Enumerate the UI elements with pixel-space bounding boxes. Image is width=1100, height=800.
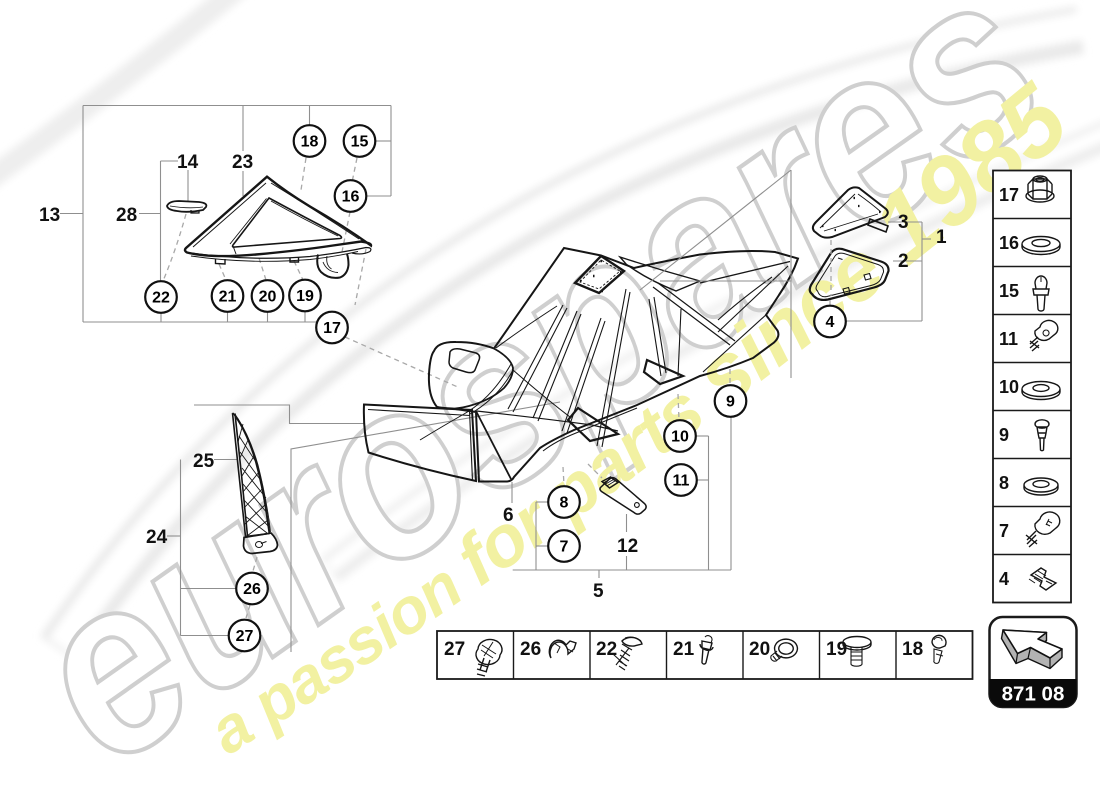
svg-text:15: 15 — [999, 281, 1019, 301]
svg-text:20: 20 — [259, 289, 277, 306]
svg-text:19: 19 — [826, 639, 847, 660]
svg-text:20: 20 — [749, 639, 770, 660]
svg-text:18: 18 — [301, 134, 319, 151]
svg-text:11: 11 — [673, 473, 690, 490]
svg-text:17: 17 — [999, 185, 1019, 205]
svg-text:17: 17 — [323, 320, 341, 337]
svg-text:4: 4 — [826, 314, 835, 331]
svg-text:1: 1 — [936, 227, 947, 248]
svg-text:24: 24 — [146, 527, 168, 548]
svg-text:6: 6 — [503, 505, 514, 526]
svg-text:7: 7 — [999, 521, 1009, 541]
svg-text:12: 12 — [617, 536, 638, 557]
svg-text:21: 21 — [673, 639, 695, 660]
svg-text:8: 8 — [560, 495, 569, 512]
svg-text:10: 10 — [671, 429, 689, 446]
svg-text:19: 19 — [296, 288, 314, 305]
svg-text:7: 7 — [560, 539, 569, 556]
svg-text:10: 10 — [999, 377, 1019, 397]
svg-text:11: 11 — [999, 329, 1018, 349]
svg-text:8: 8 — [999, 473, 1009, 493]
svg-text:21: 21 — [219, 289, 237, 306]
svg-text:5: 5 — [593, 581, 604, 602]
svg-text:27: 27 — [444, 639, 465, 660]
svg-text:27: 27 — [236, 628, 254, 645]
svg-text:26: 26 — [243, 581, 261, 598]
svg-text:13: 13 — [39, 205, 60, 226]
svg-text:2: 2 — [898, 251, 909, 272]
svg-text:871 08: 871 08 — [1002, 683, 1065, 706]
svg-text:3: 3 — [898, 212, 909, 233]
svg-text:28: 28 — [116, 205, 137, 226]
svg-text:16: 16 — [999, 233, 1019, 253]
svg-text:23: 23 — [232, 152, 253, 173]
svg-text:4: 4 — [999, 569, 1009, 589]
svg-text:18: 18 — [902, 639, 923, 660]
svg-text:15: 15 — [351, 134, 369, 151]
svg-text:9: 9 — [726, 394, 735, 411]
svg-text:14: 14 — [177, 152, 199, 173]
svg-text:16: 16 — [342, 189, 360, 206]
svg-text:22: 22 — [152, 290, 170, 307]
svg-text:22: 22 — [596, 639, 617, 660]
svg-text:9: 9 — [999, 425, 1009, 445]
svg-text:26: 26 — [520, 639, 541, 660]
svg-text:25: 25 — [193, 451, 215, 472]
